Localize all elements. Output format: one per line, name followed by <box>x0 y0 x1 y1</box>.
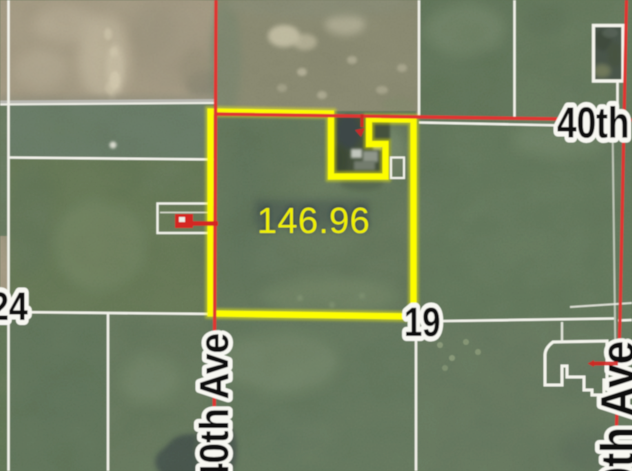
svg-text:40th: 40th <box>557 99 629 148</box>
svg-text:40th Ave: 40th Ave <box>593 341 632 471</box>
svg-text:40th Ave: 40th Ave <box>192 333 237 471</box>
svg-text:146.96: 146.96 <box>257 200 370 241</box>
svg-text:19: 19 <box>404 298 440 344</box>
svg-text:24: 24 <box>0 283 28 328</box>
